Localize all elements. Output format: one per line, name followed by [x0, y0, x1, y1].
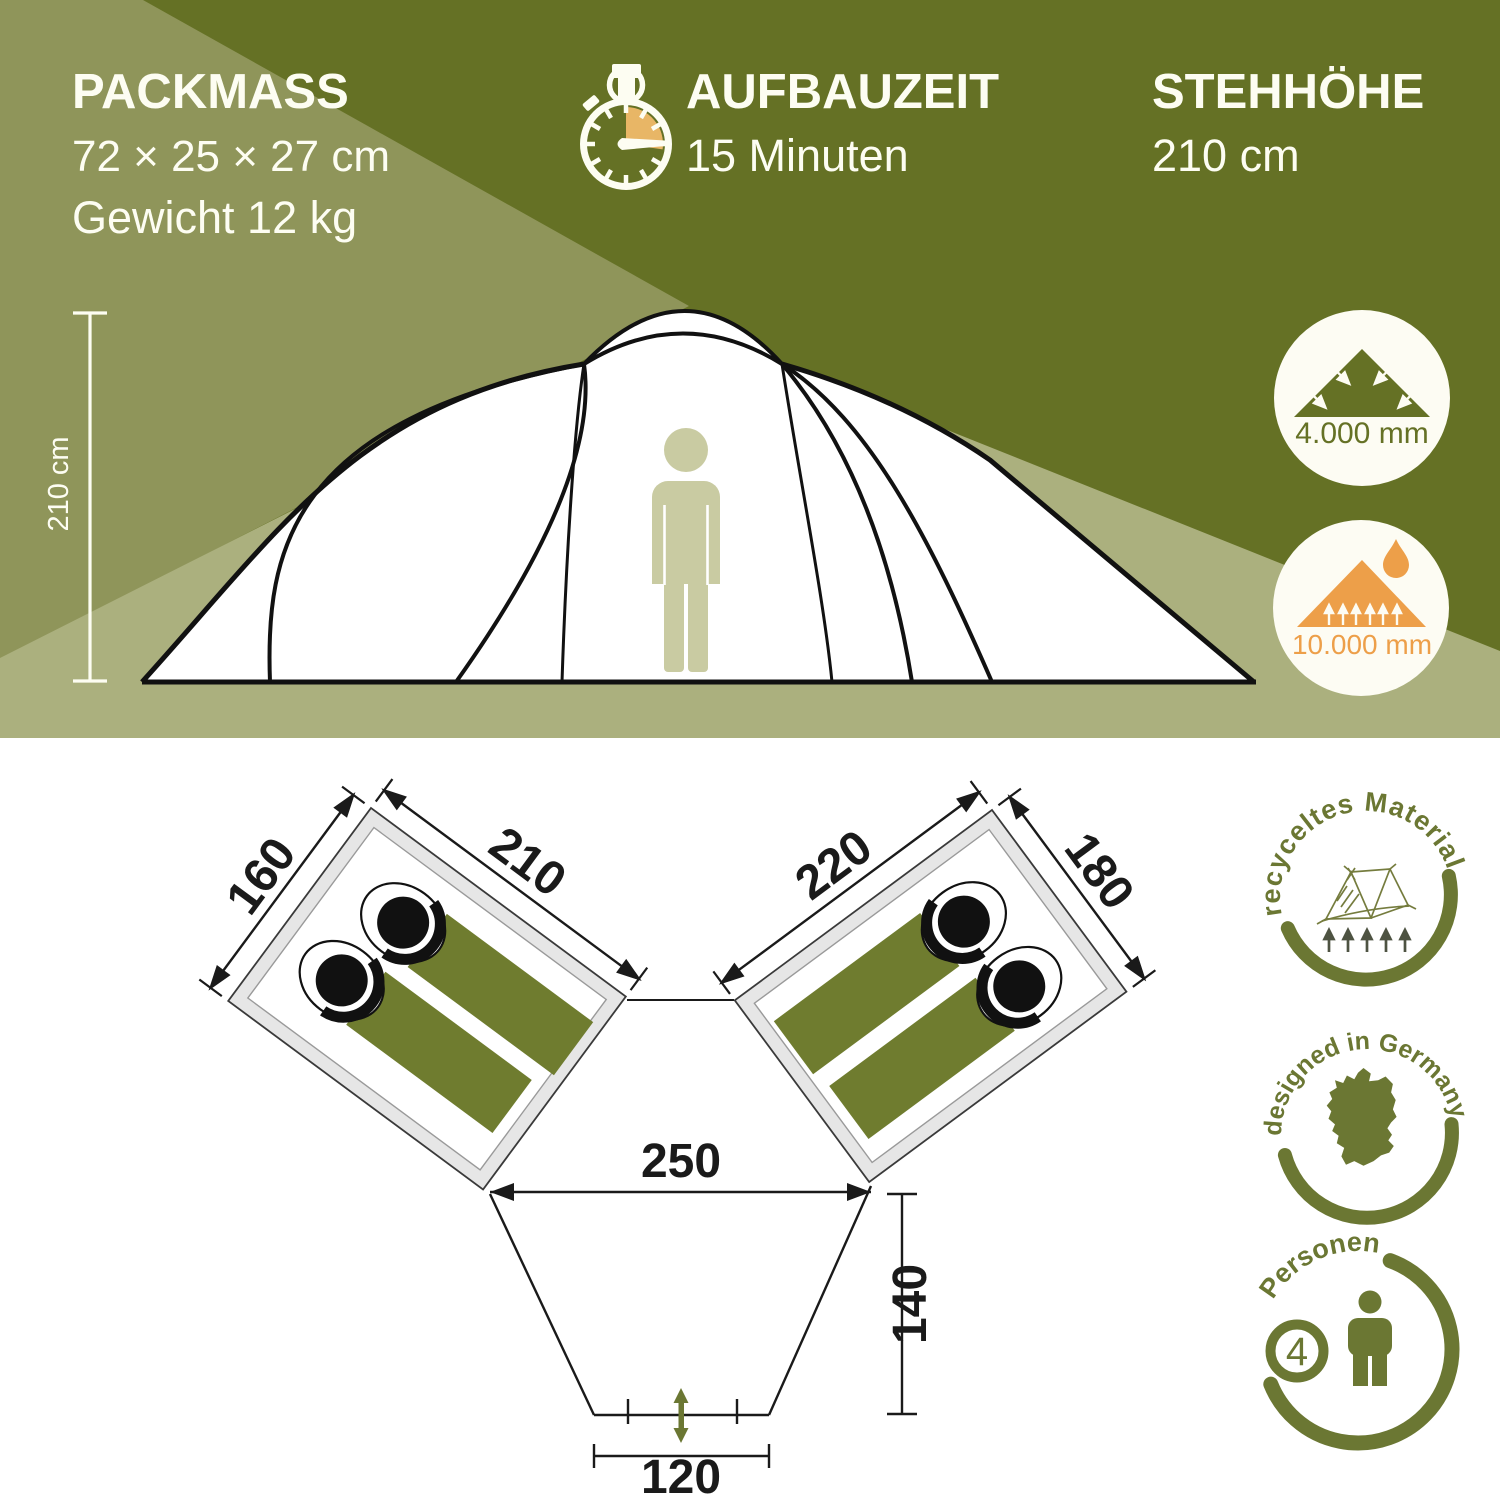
svg-text:4: 4 [1286, 1330, 1308, 1374]
svg-text:10.000 mm: 10.000 mm [1292, 629, 1432, 660]
svg-text:Gewicht 12 kg: Gewicht 12 kg [72, 192, 357, 243]
svg-text:STEHHÖHE: STEHHÖHE [1152, 65, 1424, 119]
svg-text:250: 250 [641, 1135, 721, 1188]
svg-text:15 Minuten: 15 Minuten [686, 130, 909, 181]
svg-text:210 cm: 210 cm [1152, 130, 1300, 181]
svg-text:140: 140 [884, 1264, 937, 1344]
svg-text:PACKMASS: PACKMASS [72, 65, 349, 119]
svg-text:AUFBAUZEIT: AUFBAUZEIT [686, 65, 999, 119]
svg-text:4.000 mm: 4.000 mm [1295, 417, 1428, 450]
svg-text:72 × 25 × 27 cm: 72 × 25 × 27 cm [72, 132, 390, 181]
svg-text:120: 120 [641, 1451, 721, 1500]
svg-text:210 cm: 210 cm [43, 436, 75, 531]
